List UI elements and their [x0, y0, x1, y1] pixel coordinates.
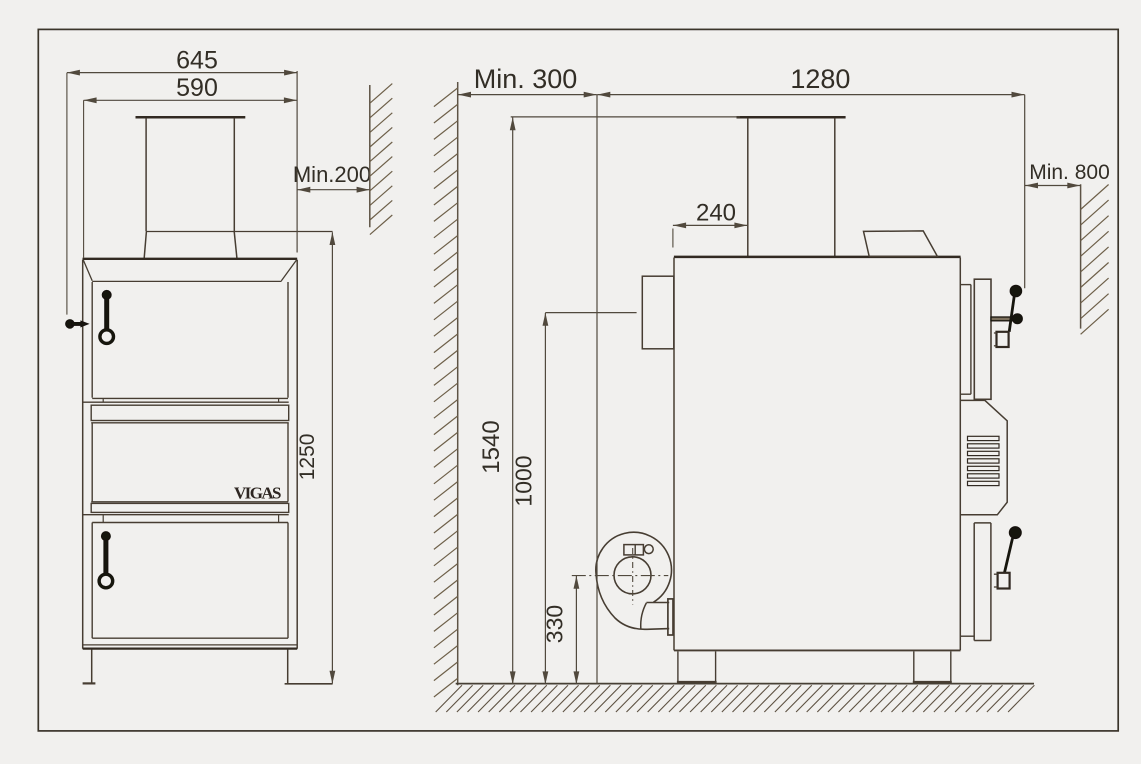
svg-text:330: 330	[542, 605, 568, 643]
svg-text:Min. 300: Min. 300	[474, 64, 578, 94]
svg-text:645: 645	[176, 46, 218, 74]
svg-text:1540: 1540	[478, 420, 505, 473]
svg-text:1250: 1250	[296, 434, 319, 481]
svg-text:590: 590	[176, 74, 218, 102]
svg-text:240: 240	[696, 199, 736, 226]
svg-text:Min.200: Min.200	[293, 162, 371, 187]
svg-text:1000: 1000	[511, 455, 537, 506]
svg-text:1280: 1280	[790, 64, 850, 94]
svg-text:Min. 800: Min. 800	[1029, 161, 1110, 184]
svg-text:VIGAS: VIGAS	[234, 484, 283, 503]
